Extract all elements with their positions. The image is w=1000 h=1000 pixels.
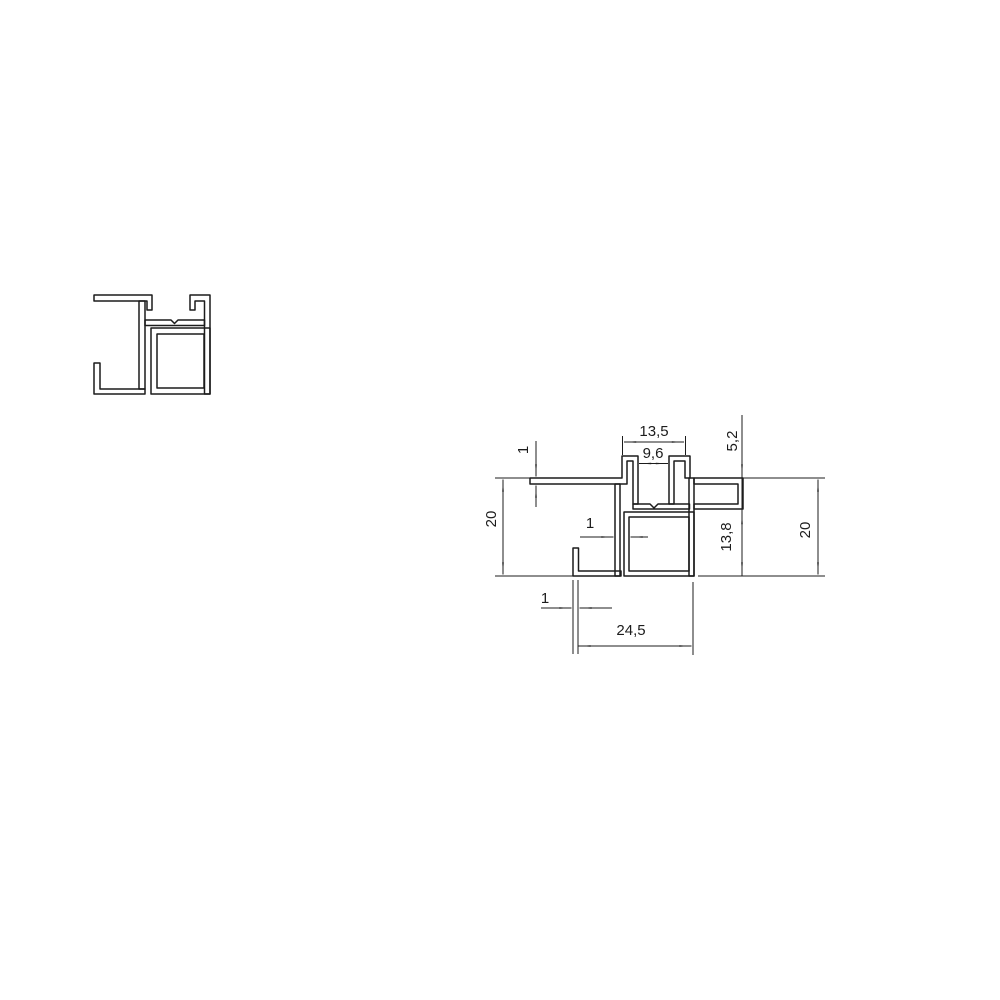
dim-label-slot-depth: 5,2 (724, 431, 741, 452)
preview-hook-and-bottom-wall (94, 363, 145, 394)
preview-top-flange-wall (94, 295, 152, 310)
stem-wall (615, 484, 620, 576)
drawing-canvas: 13,5 9,6 5,2 13,8 1 20 (0, 0, 1000, 1000)
dim-label-overall-width: 24,5 (616, 622, 645, 639)
dimension-cavity-height: 13,8 (718, 522, 742, 574)
preview-right-wall-with-lip (190, 295, 210, 394)
right-slot-rib (669, 456, 690, 504)
dim-label-flange-wall: 1 (515, 446, 532, 454)
dim-label-cavity-height: 13,8 (718, 522, 735, 551)
hook-and-bottom-wall (573, 548, 621, 576)
technical-drawing: 13,5 9,6 5,2 13,8 1 20 (0, 0, 1000, 1000)
profile-preview-view (94, 295, 210, 394)
box-outer-wall (624, 512, 694, 576)
dim-label-stem-wall: 1 (586, 515, 594, 532)
right-side-arm (694, 478, 743, 509)
preview-box-outer-wall (151, 328, 210, 394)
dimension-slot-inner-width: 9,6 (639, 445, 668, 464)
dimension-slot-outer-width: 13,5 (624, 423, 684, 442)
dimension-flange-wall: 1 (515, 441, 536, 507)
dimension-height-right: 20 (797, 480, 818, 575)
preview-slot-floor-wall (145, 320, 205, 326)
preview-box-cavity (157, 334, 204, 388)
dim-label-hook-wall: 1 (541, 590, 549, 607)
preview-stem-wall (139, 301, 145, 389)
box-cavity (629, 517, 689, 571)
dim-label-slot-outer-width: 13,5 (639, 423, 668, 440)
dim-label-height-left: 20 (483, 511, 500, 528)
dimension-height-left: 20 (483, 480, 503, 575)
dimensioned-profile-view: 13,5 9,6 5,2 13,8 1 20 (483, 415, 825, 655)
dimension-hook-wall: 1 (541, 590, 612, 608)
dimension-stem-wall: 1 (580, 515, 648, 537)
flange-and-left-slot-rib (530, 456, 638, 504)
slot-floor-wall (633, 504, 690, 509)
dimension-overall-width: 24,5 (579, 622, 692, 646)
dim-label-height-right: 20 (797, 522, 814, 539)
dim-label-slot-inner-width: 9,6 (643, 445, 664, 462)
